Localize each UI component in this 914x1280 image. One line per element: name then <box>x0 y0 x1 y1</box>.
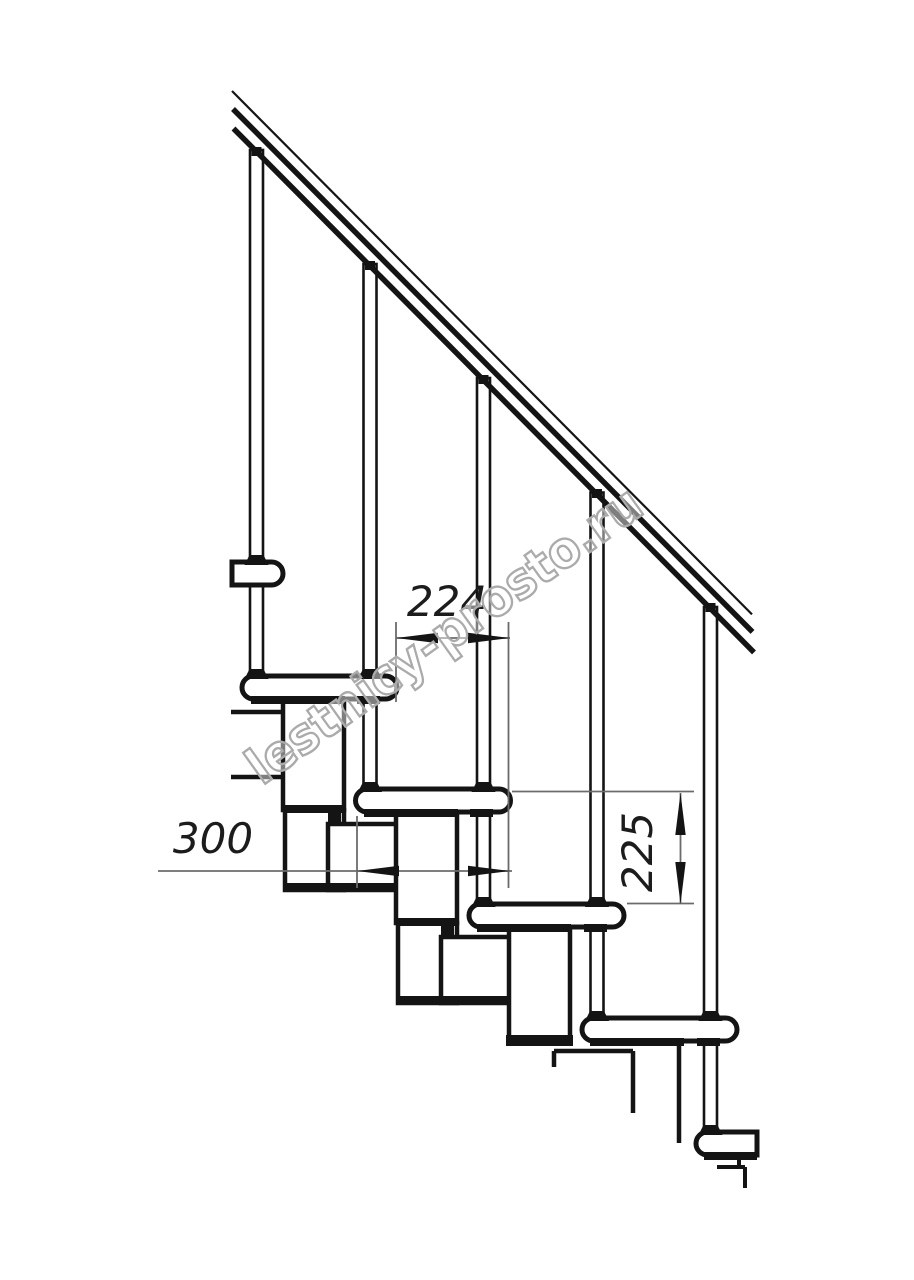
dim-300-label: 300 <box>173 814 253 863</box>
baluster-post-4 <box>591 493 604 1020</box>
tread-e <box>582 1018 737 1041</box>
support-module-5-cut <box>717 1158 745 1188</box>
staircase-technical-drawing: 224 300 225 lestnicy-prosto.ru <box>0 0 914 1280</box>
dim-225-label: 225 <box>613 812 662 892</box>
tread-d <box>469 904 624 927</box>
handrail-upper-edge <box>233 109 753 632</box>
baluster-post-1 <box>250 150 263 678</box>
handrail-top-thin-line <box>232 91 752 614</box>
drawing-page: 224 300 225 lestnicy-prosto.ru <box>0 0 914 1280</box>
dim-225-arrow-down <box>675 862 685 904</box>
tread-a <box>232 562 283 585</box>
baluster-post-5 <box>704 607 717 1134</box>
dim-225-arrow-up <box>675 793 685 835</box>
tread-c <box>356 789 511 812</box>
tread-f <box>696 1132 757 1155</box>
